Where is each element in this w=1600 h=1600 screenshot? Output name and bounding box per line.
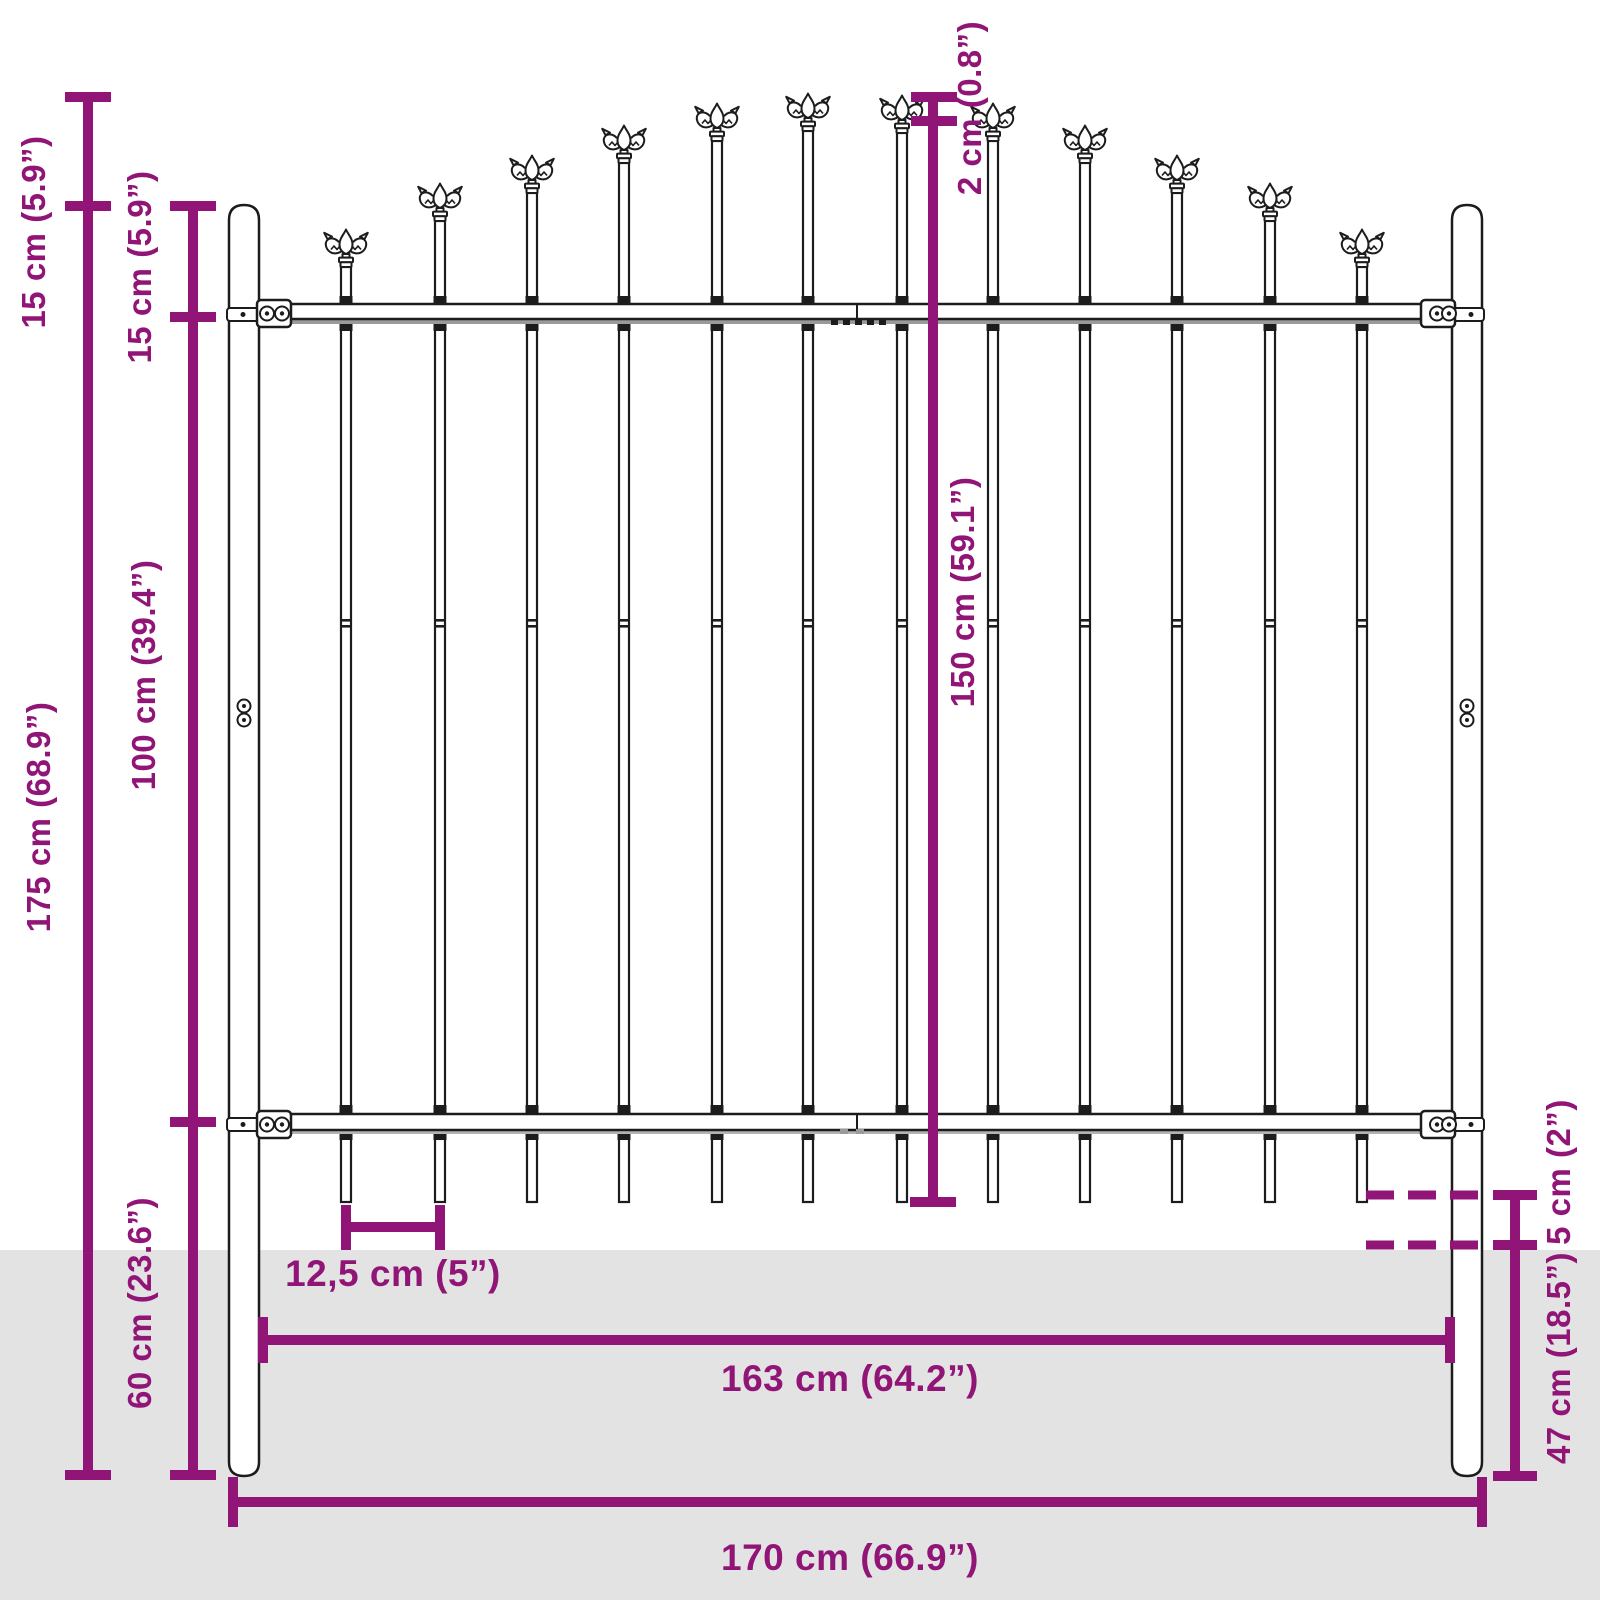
right-post bbox=[1452, 205, 1482, 1476]
pickets bbox=[324, 94, 1384, 1203]
rail-brackets bbox=[227, 300, 1484, 1138]
picket-6 bbox=[786, 94, 830, 1203]
dim-label-spear-step: 2 cm (0.8”) bbox=[951, 21, 989, 195]
bottom-rail bbox=[259, 1114, 1452, 1134]
dim-label-post-in-ground: 47 cm (18.5”) bbox=[1540, 1252, 1578, 1464]
picket-12 bbox=[1340, 230, 1384, 1203]
left-post bbox=[229, 205, 259, 1476]
top-rail bbox=[259, 304, 1452, 325]
dim-label-panel-width: 163 cm (64.2”) bbox=[721, 1358, 979, 1400]
dim-label-picket-spacing: 12,5 cm (5”) bbox=[285, 1253, 501, 1295]
dim-label-total-width: 170 cm (66.9”) bbox=[721, 1537, 979, 1579]
dim-label-post-top-to-rail: 15 cm (5.9”) bbox=[121, 170, 159, 363]
picket-11 bbox=[1248, 184, 1292, 1203]
dim-label-below-rail-depth: 60 cm (23.6”) bbox=[121, 1197, 159, 1409]
dim-label-above-ground: 5 cm (2”) bbox=[1540, 1099, 1578, 1245]
dim-label-tip-to-post-top: 15 cm (5.9”) bbox=[15, 135, 53, 328]
fence-dimension-diagram: 15 cm (5.9”) 175 cm (68.9”) 15 cm (5.9”)… bbox=[0, 0, 1600, 1600]
picket-7 bbox=[880, 96, 924, 1203]
picket-1 bbox=[324, 230, 368, 1203]
dim-label-panel-height: 150 cm (59.1”) bbox=[944, 477, 982, 708]
picket-2 bbox=[418, 184, 462, 1203]
dim-label-rail-to-rail: 100 cm (39.4”) bbox=[125, 560, 163, 791]
picket-5 bbox=[695, 104, 739, 1203]
picket-9 bbox=[1063, 126, 1107, 1203]
dim-label-total-height: 175 cm (68.9”) bbox=[20, 702, 58, 933]
picket-4 bbox=[602, 126, 646, 1203]
